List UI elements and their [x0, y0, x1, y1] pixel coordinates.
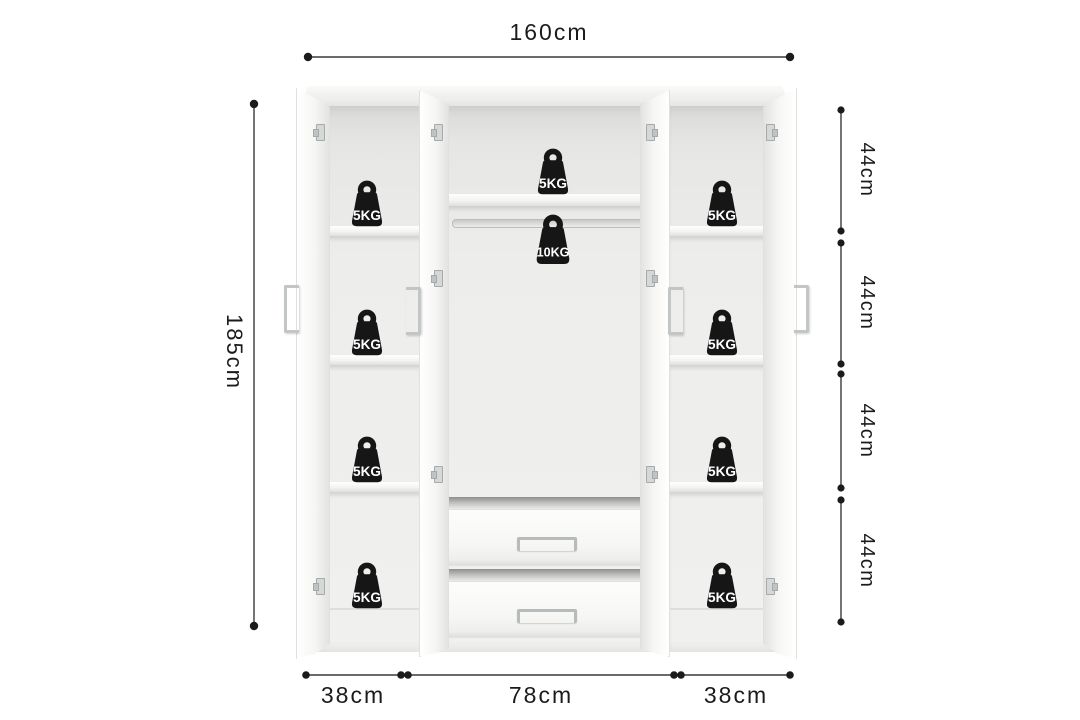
weight-icon-right-3: 5KG	[698, 436, 746, 486]
dim-44-label-1: 44cm	[856, 143, 878, 198]
drawer-1-handle	[517, 537, 577, 551]
weight-label: 5KG	[353, 208, 381, 223]
weight-icon-right-4: 5KG	[698, 562, 746, 612]
door-outer-left-handle	[284, 285, 299, 333]
weight-icon-left-4: 5KG	[343, 562, 391, 612]
door-middle-left-handle	[406, 287, 421, 335]
dim-78-label: 78cm	[509, 682, 573, 708]
hinge-icon	[316, 578, 325, 595]
weight-label: 5KG	[353, 590, 381, 605]
weight-label: 5KG	[539, 176, 567, 191]
door-middle-right-handle	[668, 287, 683, 335]
weight-label: 5KG	[353, 464, 381, 479]
hinge-icon	[434, 466, 443, 483]
dim-44-label-3: 44cm	[856, 404, 878, 459]
weight-icon-left-2: 5KG	[343, 309, 391, 359]
weight-label: 10KG	[537, 246, 570, 260]
dim-width-label: 160cm	[509, 19, 588, 45]
dim-44-label-4: 44cm	[856, 534, 878, 589]
door-outer-right-handle	[794, 285, 809, 333]
hinge-icon	[434, 270, 443, 287]
dim-right-segments: 44cm 44cm 44cm 44cm	[837, 106, 878, 625]
hinge-icon	[766, 578, 775, 595]
weight-icon-right-1: 5KG	[698, 180, 746, 230]
weight-label: 5KG	[708, 337, 736, 352]
drawer-2-gap	[436, 569, 654, 581]
weight-label: 5KG	[353, 337, 381, 352]
weight-label: 5KG	[708, 208, 736, 223]
door-middle-left	[419, 90, 449, 657]
weight-icon-right-2: 5KG	[698, 309, 746, 359]
weight-icon-middle-rail: 10KG	[527, 214, 579, 268]
hinge-icon	[646, 466, 655, 483]
dim-height-label: 185cm	[222, 314, 247, 390]
dim-bottom-segments: 38cm 78cm 38cm	[302, 671, 794, 708]
door-outer-left	[296, 86, 330, 660]
door-middle-right	[640, 90, 670, 657]
dim-38-right-label: 38cm	[704, 682, 768, 708]
hinge-icon	[766, 124, 775, 141]
weight-icon-middle-shelf: 5KG	[529, 148, 577, 198]
dim-overall-height: 185cm	[222, 100, 258, 630]
wardrobe-dimension-diagram: 5KG 5KG 5KG 5KG 5KG 10KG 5KG 5KG	[0, 0, 1080, 720]
hinge-icon	[646, 270, 655, 287]
hinge-icon	[646, 124, 655, 141]
weight-label: 5KG	[708, 464, 736, 479]
dim-44-label-2: 44cm	[856, 276, 878, 331]
weight-icon-left-3: 5KG	[343, 436, 391, 486]
door-outer-right	[763, 86, 797, 660]
drawer-1-gap	[436, 497, 654, 509]
hinge-icon	[316, 124, 325, 141]
hinge-icon	[434, 124, 443, 141]
weight-label: 5KG	[708, 590, 736, 605]
dim-38-left-label: 38cm	[321, 682, 385, 708]
dim-overall-width: 160cm	[304, 19, 794, 61]
drawer-2-handle	[517, 609, 577, 623]
weight-icon-left-1: 5KG	[343, 180, 391, 230]
